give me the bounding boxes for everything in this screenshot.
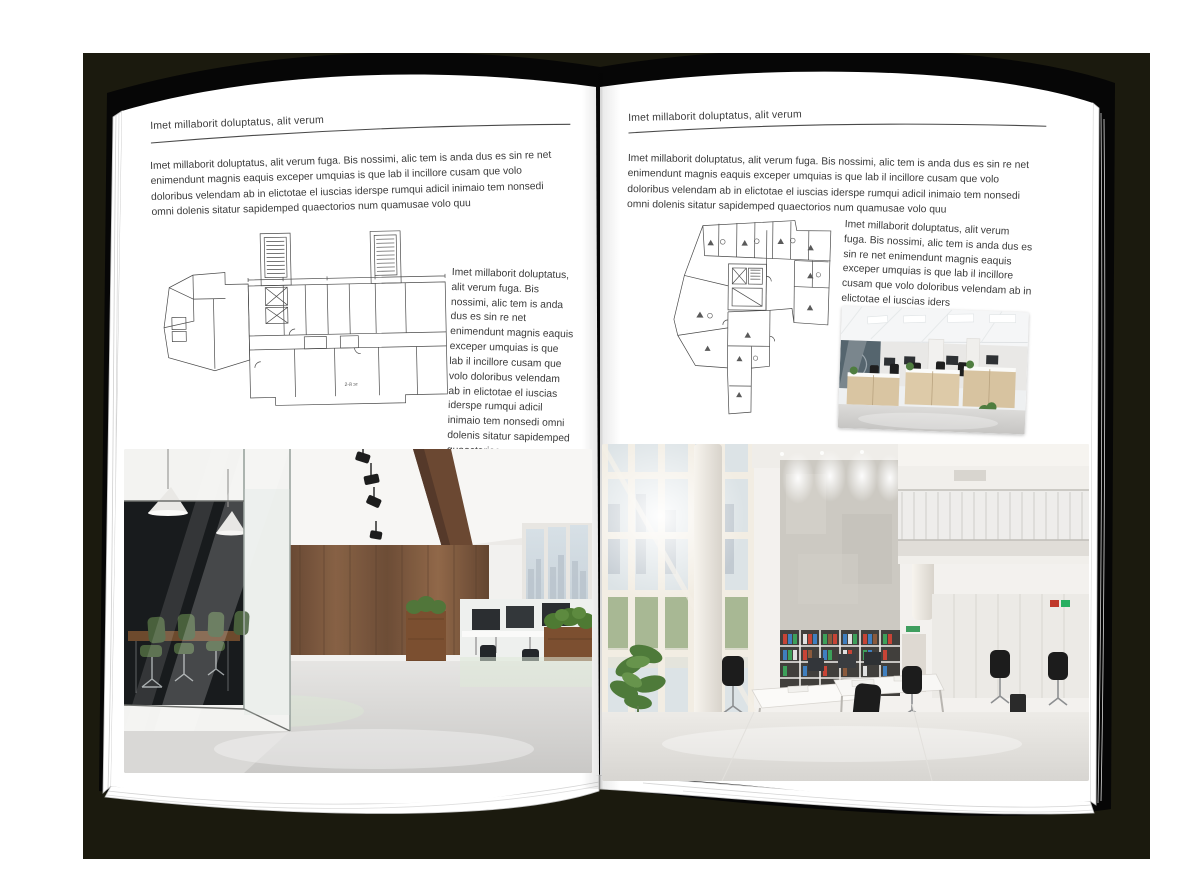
right-floor-plan: [643, 215, 841, 422]
left-page-side-paragraph: Imet millaborit doluptatus, alit verum f…: [446, 266, 576, 477]
mockup-backdrop: Imet millaborit doluptatus, alit verum I…: [83, 53, 1150, 859]
left-plan-floor-label: 2-й эт: [345, 381, 359, 388]
right-page-photo: [602, 444, 1089, 781]
right-page-side-paragraph: Imet millaborit doluptatus, alit verum f…: [841, 218, 1035, 315]
right-page-small-photo: [838, 306, 1029, 434]
left-floor-plan: 2-й эт: [152, 224, 454, 418]
screenshot-canvas: Imet millaborit doluptatus, alit verum I…: [0, 0, 1200, 891]
right-page-intro-paragraph: Imet millaborit doluptatus, alit verum f…: [627, 151, 1044, 220]
left-page-photo: [124, 449, 592, 773]
left-page-intro-paragraph: Imet millaborit doluptatus, alit verum f…: [150, 147, 568, 220]
